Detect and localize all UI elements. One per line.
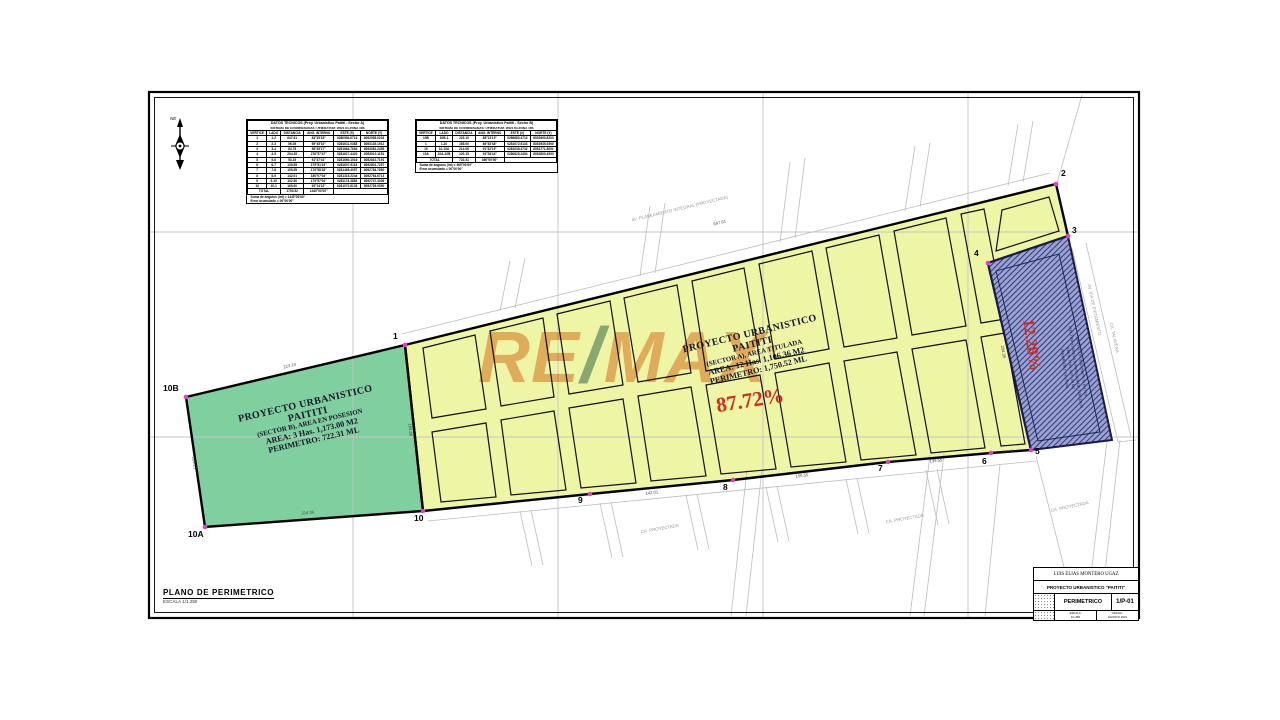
svg-text:AV. VIA DE EVITAMIENTO: AV. VIA DE EVITAMIENTO xyxy=(1087,284,1103,337)
table-cell: 0281611.0368 xyxy=(334,141,361,146)
plan-scale: ESCALA 1/1,250 xyxy=(163,599,197,604)
table-cell: 0281038.4732 xyxy=(504,146,530,151)
svg-text:155.55: 155.55 xyxy=(795,472,809,479)
table-cell: 8052801.7257 xyxy=(361,162,388,167)
sheet-number: 1/P-01 xyxy=(1111,594,1138,610)
table-cell: 10A-10B xyxy=(435,152,453,157)
table-cell: 8053135.1912 xyxy=(361,141,388,146)
owner-name: LUIS ELIAS MONTERO UGAZ xyxy=(1034,568,1138,581)
table-cell: 0281607.9118 xyxy=(334,162,361,167)
table-cell: 8052784.7850 xyxy=(361,168,388,173)
scale-meta: ESCALA:1/1,250 xyxy=(1055,611,1097,620)
vertex-label-8: 8 xyxy=(723,482,728,492)
table-cell: 8052771.5091 xyxy=(530,146,556,151)
svg-text:139.55: 139.55 xyxy=(929,457,943,463)
location-sketch xyxy=(1034,594,1055,610)
project-name: PROYECTO URBANISTICO "PAITITI" xyxy=(1034,581,1138,594)
vertex-label-9: 9 xyxy=(578,495,583,505)
vertex-label-2: 2 xyxy=(1061,168,1066,178)
svg-text:647.61: 647.61 xyxy=(713,218,727,226)
table-row: 10A 10A-10B 120.15 93°28'44" 0280825.245… xyxy=(417,152,557,157)
table-cell: 0281315.2244 xyxy=(334,173,361,178)
table-cell: 0281072.6133 xyxy=(504,141,530,146)
title-block: LUIS ELIAS MONTERO UGAZ PROYECTO URBANIS… xyxy=(1033,567,1139,621)
stamp-area xyxy=(1034,611,1055,620)
table-cell: 8053081.2455 xyxy=(361,146,388,151)
vertex-label-4: 4 xyxy=(974,248,979,258)
table-cell: 0281072.6133 xyxy=(334,184,361,189)
svg-text:223.10: 223.10 xyxy=(283,362,297,370)
col-header: DISTANCIA xyxy=(453,131,475,136)
table-cell: 8052747.3306 xyxy=(361,178,388,183)
table-cell: 8052800.4593 xyxy=(530,152,556,157)
table-cell: 0281469.4057 xyxy=(334,168,361,173)
vertex-label-5: 5 xyxy=(1035,446,1040,456)
vertex-label-3: 3 xyxy=(1072,225,1077,235)
svg-text:CA. PROYECTADA: CA. PROYECTADA xyxy=(1050,500,1089,513)
table-cell: 8052810.7191 xyxy=(361,157,388,162)
datos-tecnicos-sector-a-table: DATOS TECNICOS (Proy. Urbanistico Paitit… xyxy=(246,119,389,204)
vertex-label-1: 1 xyxy=(393,331,398,341)
error-row: Error acumulado = 00°00'00" xyxy=(248,199,388,203)
table-cell: 8052955.0203 xyxy=(361,136,388,141)
table-cell: 0281660.1516 xyxy=(334,157,361,162)
plan-title: PLANO DE PERIMETRICO xyxy=(163,588,274,599)
col-header: ANG. INTERNO xyxy=(304,131,334,136)
table-cell: 8052735.0590 xyxy=(361,184,388,189)
table-cell: 0281617.4423 xyxy=(334,152,361,157)
watermark-re: RE xyxy=(478,318,580,398)
svg-text:AV. PLANEAMIENTO INTEGRAL (PRO: AV. PLANEAMIENTO INTEGRAL (PROYECTADA) xyxy=(631,194,729,222)
svg-text:120.15: 120.15 xyxy=(191,456,198,470)
col-header: VERTICE xyxy=(248,131,267,136)
table-cell: 0280880.4713 xyxy=(504,136,530,141)
table-header-row: VERTICE LADO DISTANCIA ANG. INTERNO ESTE… xyxy=(248,131,388,136)
datos-tecnicos-sector-b-table: DATOS TECNICOS (Proy. Urbanistico Paitit… xyxy=(415,119,558,173)
col-header: VERTICE xyxy=(417,131,436,136)
svg-text:CA. PROYECTADA: CA. PROYECTADA xyxy=(885,513,924,525)
table-cell: 8052990.8203 xyxy=(530,136,556,141)
table-cell: 8052935.0590 xyxy=(530,141,556,146)
watermark-slash: / xyxy=(581,311,603,399)
col-header: DISTANCIA xyxy=(281,131,304,136)
table-cell: 0281174.3884 xyxy=(334,178,361,183)
table-cell: 8052764.6713 xyxy=(361,173,388,178)
vertex-label-10a: 10A xyxy=(188,529,204,539)
svg-text:214.06: 214.06 xyxy=(301,510,315,516)
date-meta: FECHA:AGOSTO 2021 xyxy=(1097,611,1138,620)
col-header: ANG. INTERNO xyxy=(475,131,504,136)
svg-text:NE: NE xyxy=(170,116,177,121)
sheet-name: PERIMETRICO xyxy=(1055,594,1111,610)
plan-sheet: 223.10 120.15 214.06 165.00 647.61 142.0… xyxy=(0,0,1280,720)
svg-text:CA. PROYECTADA: CA. PROYECTADA xyxy=(640,523,679,535)
table-cell: 0280825.2454 xyxy=(504,152,530,157)
error-row: Error acumulado = 00°00'00" xyxy=(417,167,557,171)
vertex-label-10b: 10B xyxy=(163,383,179,393)
table-cell: 0280954.0713 xyxy=(334,136,361,141)
svg-text:142.01: 142.01 xyxy=(645,489,659,496)
vertex-label-7: 7 xyxy=(878,463,883,473)
svg-text:53.15: 53.15 xyxy=(1002,449,1013,455)
table-cell: 0281664.7664 xyxy=(334,146,361,151)
north-arrow-icon: NE xyxy=(170,116,189,170)
vertex-label-10: 10 xyxy=(414,513,423,523)
vertex-label-6: 6 xyxy=(982,456,987,466)
table-cell: 8053010.1151 xyxy=(361,152,388,157)
